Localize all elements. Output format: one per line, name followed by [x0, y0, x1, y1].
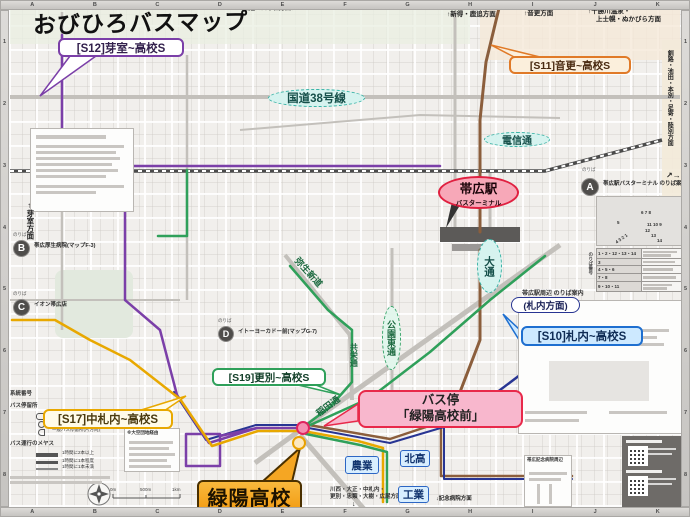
legend-keito: 系統番号: [10, 392, 32, 398]
noriba-b-circle: B: [13, 240, 30, 257]
tag-kogyo: 工業: [398, 486, 429, 503]
dir-kushiro: 釧路・池田・本別・足寄・陸別方面: [666, 50, 672, 170]
callout-s17: [S17]中札内~高校S: [43, 409, 173, 429]
noriba-d-label: イトーヨーカドー前(マップG-7): [238, 330, 317, 336]
noriba-a-label: 帯広駅バスターミナル のりば案内: [603, 182, 687, 188]
scale-500m: 500m: [140, 488, 151, 493]
panel-shuhen-body: [518, 300, 682, 434]
noriba-c-circle: C: [13, 299, 30, 316]
dir-kawanishi-2: 更別・忠類・大樹・広尾方面: [330, 495, 402, 501]
bus-map-page: ABCDEFGHIJK ABCDEFGHIJK 12345678 1234567…: [0, 0, 690, 517]
callout-satsunai: (札内方面): [511, 297, 580, 313]
noriba-b-label: 帯広厚生病院(マップF-3): [34, 244, 95, 250]
noriba-b-prefix: のりば: [13, 233, 27, 238]
school-circle: [293, 437, 305, 449]
busstop-circle: [297, 422, 309, 434]
grid-bar-right: 12345678: [681, 10, 690, 507]
lens-route38: 国道38号線: [268, 89, 365, 107]
noriba-a-circle: A: [581, 178, 599, 196]
station-obihiro: 帯広駅 バスターミナル: [438, 176, 519, 209]
road-label-kyoei: 共栄通: [349, 343, 357, 367]
tag-hokko: 北高: [400, 450, 430, 467]
compass-icon: [88, 483, 110, 505]
route-layer: [0, 0, 690, 517]
dir-kawanishi-1: 川西・大正・中札内・: [330, 488, 385, 494]
legend-teiryujo: バス停留所: [10, 404, 38, 410]
callout-s19: [S19]更別~高校S: [212, 368, 326, 386]
lens-odori: 大通: [477, 239, 502, 293]
qr-code-2: [628, 476, 648, 496]
scale-1km: 1km: [172, 488, 181, 493]
panel-kinen-area: 帯広記念病院周辺: [524, 455, 572, 507]
lens-denshin: 電信通: [484, 132, 550, 147]
lens-koen-higashi: 公園東通: [382, 306, 401, 370]
callout-s10: [S10]札内~高校S: [521, 326, 643, 346]
panel-topleft-info: [30, 128, 134, 212]
scale-0m: 0m: [110, 488, 116, 493]
dir-tokachi-1: ↑十勝川温泉・: [588, 9, 630, 16]
noriba-a-prefix: のりば: [582, 168, 596, 173]
qr-code-1: [628, 446, 648, 466]
dir-shintoku: ↑新得・鹿追方面: [447, 12, 496, 19]
dir-kushiro-arrows: ↗→: [666, 172, 681, 180]
terminal-bay-diagram: 6 7 8 5 11 10 9 12 13 14 4 3 2 1: [596, 196, 682, 246]
callout-bus-stop: バス停 「緑陽高校前」: [358, 390, 523, 428]
callout-s12: [S12]芽室~高校S: [58, 38, 184, 57]
qr-panel: [622, 436, 682, 507]
map-title: おびひろバスマップ: [33, 9, 249, 37]
dir-memuro: ←芽室方面: [26, 202, 34, 240]
legend-unko: バス運行のメヤス: [10, 442, 54, 448]
terminal-col-label: のりば番号: [588, 252, 593, 275]
dir-tokachi-2: 上士幌・ぬかびら方面: [596, 17, 661, 24]
grid-bar-bottom: ABCDEFGHIJK: [0, 507, 690, 517]
grid-bar-top: ABCDEFGHIJK: [0, 0, 690, 10]
noriba-d-prefix: のりば: [218, 319, 232, 324]
noriba-c-prefix: のりば: [13, 292, 27, 297]
terminal-bay-table: 1・2・12・13・14 3 4・5・6 7・8 9・10・11: [596, 248, 682, 292]
panel-ozora: ※大空団地経由: [124, 428, 180, 472]
dir-kinen: ↓記念病院方面: [436, 497, 472, 503]
terminal-bay-panel: 6 7 8 5 11 10 9 12 13 14 4 3 2 1 1・2・12・…: [596, 196, 682, 300]
tag-nogyo: 農業: [345, 456, 379, 474]
dir-otofuke: ↑音更方面: [524, 11, 553, 18]
callout-s11: [S11]音更~高校S: [509, 56, 631, 74]
noriba-d-circle: D: [218, 326, 234, 342]
grid-bar-left: 12345678: [0, 10, 9, 507]
noriba-c-label: イオン帯広店: [34, 303, 67, 309]
